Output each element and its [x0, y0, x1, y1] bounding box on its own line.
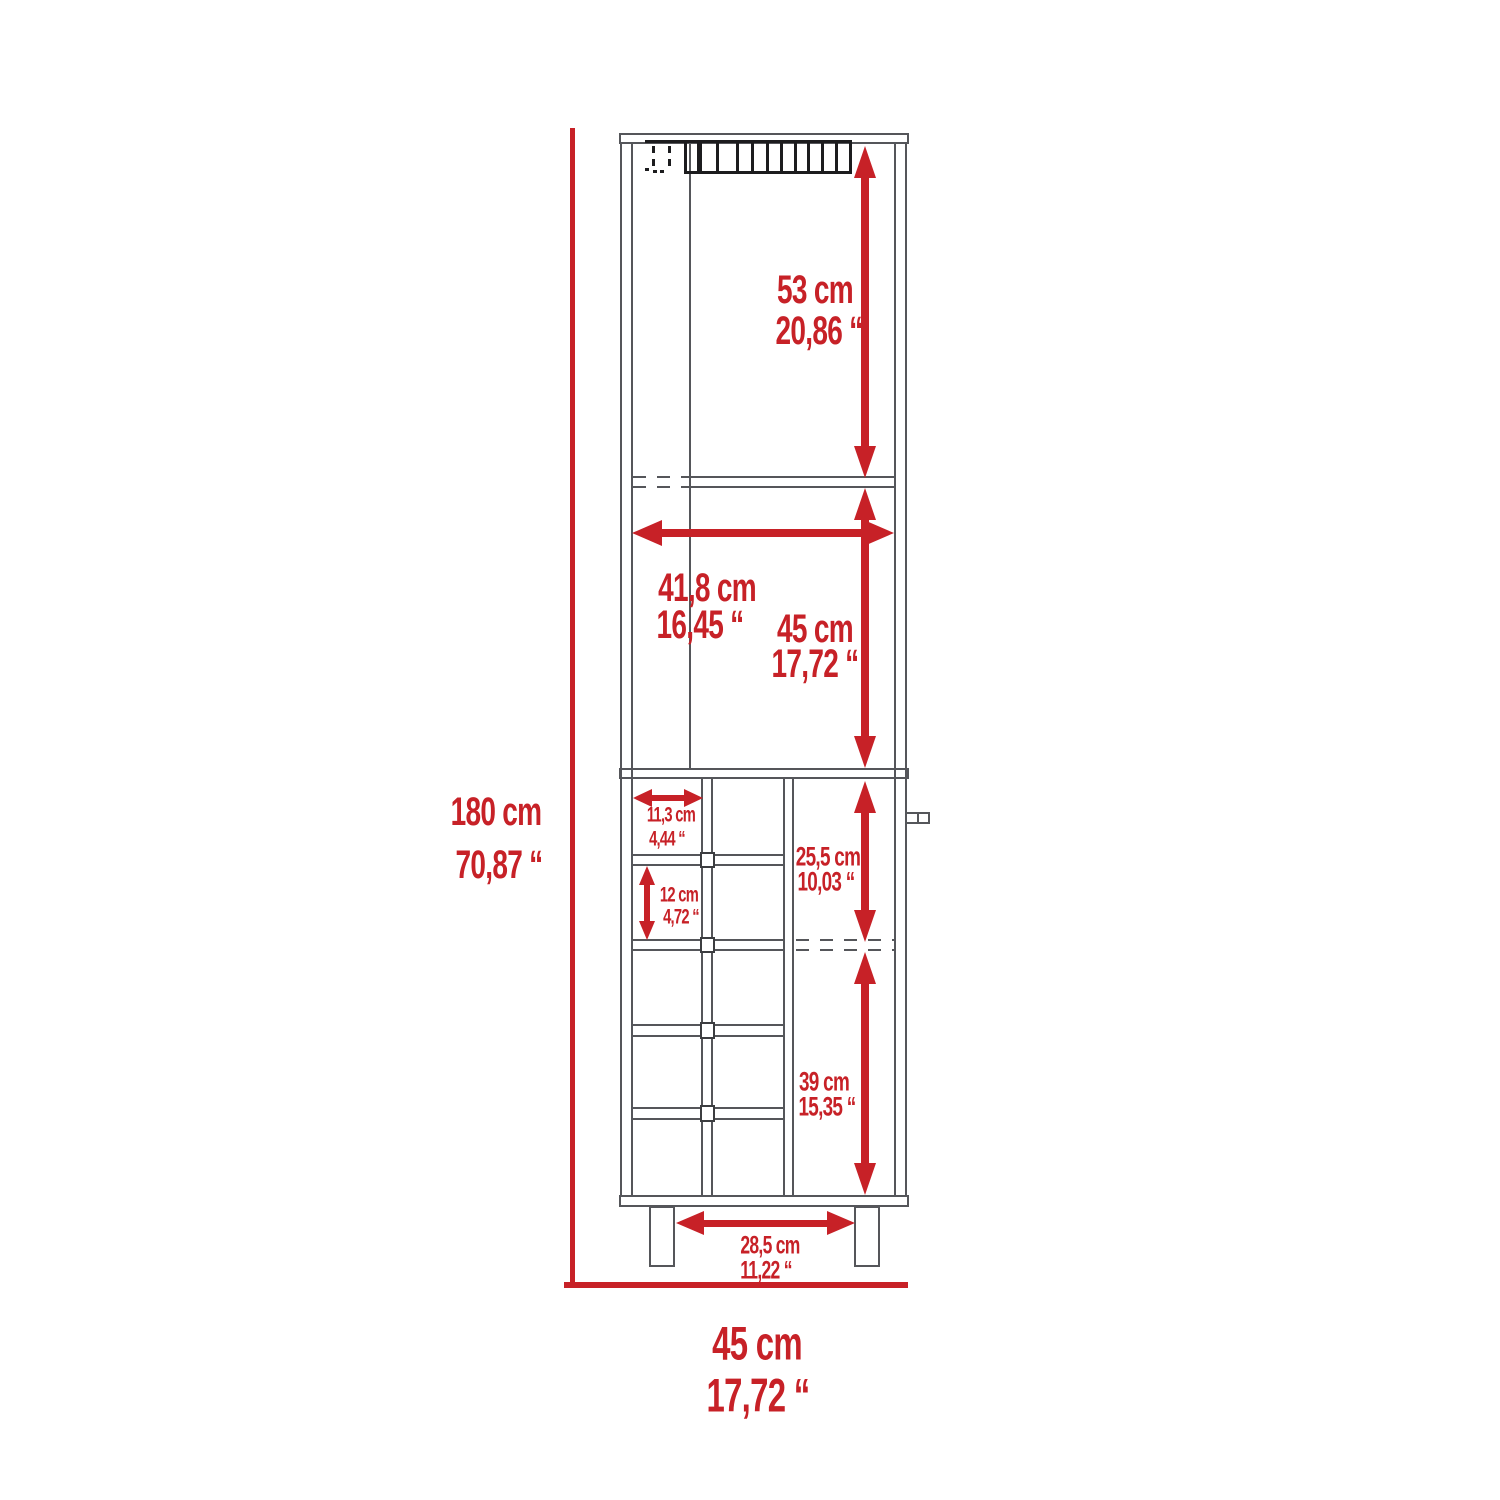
total-height-reference-line: [570, 128, 575, 1287]
arrow-interior-width-right: [864, 520, 894, 546]
rack-slat-line: [794, 143, 797, 173]
label-top-section-inch: 20,86 “: [776, 311, 863, 351]
cabinet-leg-right: [854, 1206, 880, 1267]
label-cubby-height-inch: 4,72 “: [663, 907, 699, 928]
door-hidden-shelf-top: [796, 939, 894, 941]
arrow-door-upper-shaft: [861, 811, 869, 912]
rack-slat-line: [821, 143, 824, 173]
arrow-interior-width-shaft: [660, 529, 866, 537]
cabinet-mid-panel: [619, 768, 909, 779]
arrow-leg-spacing-shaft: [702, 1220, 828, 1227]
label-cubby-width-inch: 4,44 “: [649, 829, 685, 850]
arrow-cubby-height-down: [639, 921, 655, 940]
arrow-middle-section-shaft: [861, 518, 869, 738]
arrow-interior-width-left: [632, 520, 662, 546]
door-edge-line: [792, 779, 794, 1196]
total-width-reference-line: [564, 1282, 908, 1288]
cabinet-right-side-outer-line: [905, 143, 907, 1196]
rack-slat-line: [716, 143, 719, 173]
label-leg-spacing-inch: 11,22 “: [740, 1259, 792, 1284]
label-cubby-width-cm: 11,3 cm: [647, 805, 695, 826]
arrow-cubby-height-shaft: [644, 883, 650, 923]
shelf-joint-square: [700, 1105, 715, 1122]
arrow-door-upper-up: [854, 781, 876, 813]
arrow-door-lower-up: [854, 952, 876, 984]
rack-hidden-dot: [653, 170, 657, 173]
label-interior-width-cm: 41,8 cm: [658, 568, 756, 608]
arrow-middle-section-down: [854, 736, 876, 768]
hutch-shelf-hidden-bottom: [633, 486, 690, 488]
label-door-lower-inch: 15,35 “: [798, 1094, 855, 1121]
cubby-divider-line: [701, 779, 703, 1196]
label-cubby-height-cm: 12 cm: [660, 885, 698, 906]
rack-hidden-slat-dashed: [652, 146, 655, 170]
door-handle-divider: [917, 812, 919, 824]
rack-slat-line: [807, 143, 810, 173]
label-total-height-cm: 180 cm: [451, 792, 542, 832]
arrow-top-section-up: [854, 146, 876, 178]
cubby-divider-line: [711, 779, 713, 1196]
arrow-cubby-width-shaft: [650, 795, 686, 801]
rack-slat-line: [766, 143, 769, 173]
cabinet-left-side-outer-line: [620, 143, 622, 1196]
label-interior-width-inch: 16,45 “: [657, 605, 744, 645]
rack-hidden-dot: [660, 170, 664, 173]
arrow-leg-spacing-right: [827, 1211, 855, 1235]
hutch-shelf-hidden-top: [633, 476, 690, 478]
cabinet-dimension-diagram: 53 cm 20,86 “ 41,8 cm 16,45 “ 45 cm 17,7…: [0, 0, 1500, 1500]
shelf-joint-square: [700, 852, 715, 868]
rack-slat-line: [849, 143, 852, 173]
label-middle-section-inch: 17,72 “: [772, 644, 859, 684]
arrow-middle-section-up: [854, 488, 876, 520]
shelf-joint-square: [700, 937, 715, 953]
label-door-upper-inch: 10,03 “: [797, 869, 854, 896]
rack-slat-line: [780, 143, 783, 173]
label-leg-spacing-cm: 28,5 cm: [740, 1234, 799, 1259]
cabinet-center-edge-line: [689, 143, 691, 769]
cabinet-right-side-inner-line: [894, 143, 896, 1196]
rack-slat-line: [697, 143, 702, 173]
label-top-section-cm: 53 cm: [777, 270, 853, 310]
label-total-height-inch: 70,87 “: [456, 845, 543, 885]
arrow-door-upper-down: [854, 910, 876, 942]
door-hidden-shelf-bottom: [796, 949, 894, 951]
door-edge-line: [783, 779, 785, 1196]
rack-hidden-slat-dashed: [668, 146, 671, 170]
shelf-joint-square: [700, 1022, 715, 1039]
rack-slat-line: [684, 143, 687, 173]
arrow-leg-spacing-left: [676, 1211, 704, 1235]
label-total-width-inch: 17,72 “: [706, 1372, 809, 1419]
rack-hidden-dot: [645, 168, 649, 171]
arrow-door-lower-shaft: [861, 982, 869, 1165]
cabinet-leg-left: [649, 1206, 675, 1267]
rack-slat-line: [736, 143, 739, 173]
arrow-top-section-down: [854, 446, 876, 478]
cabinet-left-side-inner-line: [631, 143, 633, 1196]
rack-slat-line: [751, 143, 754, 173]
arrow-door-lower-down: [854, 1163, 876, 1195]
rack-slat-line: [835, 143, 838, 173]
label-total-width-cm: 45 cm: [712, 1320, 802, 1367]
